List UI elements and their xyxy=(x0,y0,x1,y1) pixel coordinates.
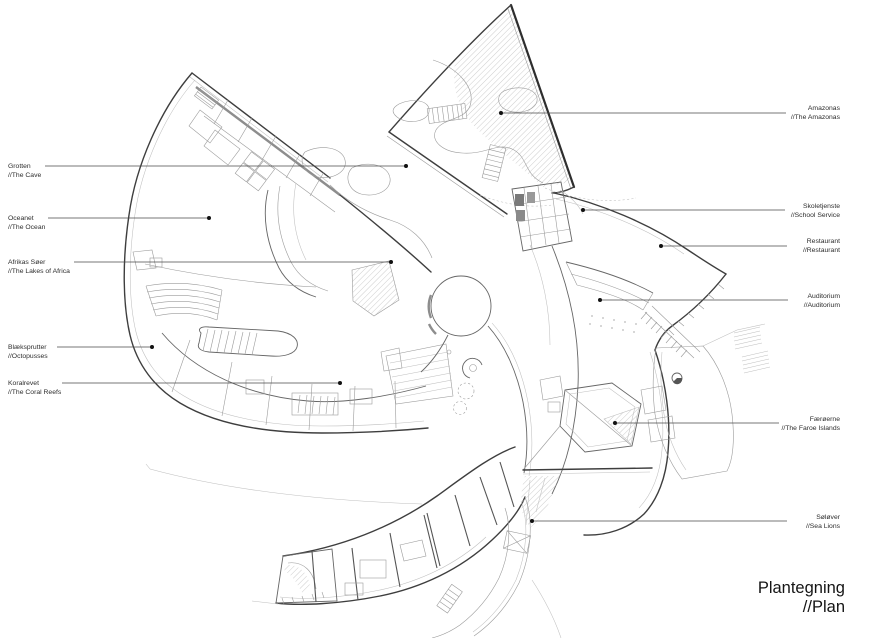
exterior-quay xyxy=(146,464,561,638)
leaders xyxy=(45,111,788,523)
striped-tank xyxy=(198,327,297,356)
labels-left: Grotten //The Cave Oceanet //The Ocean A… xyxy=(8,163,70,396)
leader-faeroerne xyxy=(613,421,779,425)
label-faeroerne-da: Færøerne xyxy=(810,416,840,423)
label-afrikas-en: //The Lakes of Africa xyxy=(8,268,70,275)
label-soelover-en: //Sea Lions xyxy=(806,523,841,530)
leader-skoletjenste xyxy=(581,208,785,212)
sea-lion-head xyxy=(276,549,337,604)
label-grotten-da: Grotten xyxy=(8,163,31,170)
hatch-area-west xyxy=(352,261,399,316)
label-afrikas-da: Afrikas Søer xyxy=(8,259,46,266)
auditorium-seating xyxy=(566,262,653,333)
escalator-stairs xyxy=(641,306,700,358)
label-restaurant-en: //Restaurant xyxy=(803,247,840,254)
label-skoletjenste-en: //School Service xyxy=(791,212,840,219)
leader-blaeksprutter xyxy=(57,345,154,349)
label-koralrevet-da: Koralrevet xyxy=(8,380,39,387)
leader-restaurant xyxy=(659,244,787,248)
label-skoletjenste-da: Skoletjenste xyxy=(803,203,840,210)
label-blaeksprutter-da: Blæksprutter xyxy=(8,344,47,351)
ray-tank xyxy=(381,344,453,404)
coral-room-dividers xyxy=(172,340,396,431)
floor-plan-sheet: Grotten //The Cave Oceanet //The Ocean A… xyxy=(0,0,870,638)
label-oceanet-en: //The Ocean xyxy=(8,224,46,231)
amphitheatre-stairs xyxy=(146,283,222,320)
arm-amazonas xyxy=(387,5,636,217)
label-faeroerne-en: //The Faroe Islands xyxy=(781,425,840,432)
school-service-block xyxy=(512,182,583,251)
label-restaurant-da: Restaurant xyxy=(807,238,840,245)
arm-south xyxy=(276,447,560,638)
sheet-title-line1: Plantegning xyxy=(758,579,845,597)
spiral-stair xyxy=(672,373,682,384)
leader-koralrevet xyxy=(62,381,342,385)
label-oceanet-da: Oceanet xyxy=(8,215,34,222)
arm-west xyxy=(124,73,453,433)
label-soelover-da: Søløver xyxy=(816,514,841,521)
grotten-room-dividers xyxy=(189,100,324,196)
floor-plan-drawing: Grotten //The Cave Oceanet //The Ocean A… xyxy=(0,0,870,638)
label-amazonas-da: Amazonas xyxy=(808,105,841,112)
labels-right: Amazonas //The Amazonas Skoletjenste //S… xyxy=(781,105,840,530)
wc-cluster xyxy=(235,152,274,191)
outdoor-wing xyxy=(653,324,770,479)
label-blaeksprutter-en: //Octopusses xyxy=(8,353,48,360)
leader-oceanet xyxy=(48,216,211,220)
africa-lakes xyxy=(302,148,432,258)
label-auditorium-en: //Auditorium xyxy=(804,302,841,309)
octopus-corner-rooms xyxy=(133,250,162,270)
label-auditorium-da: Auditorium xyxy=(808,293,841,300)
leader-afrikas xyxy=(74,260,393,264)
label-amazonas-en: //The Amazonas xyxy=(791,114,841,121)
leader-auditorium xyxy=(598,298,788,302)
bridge-stairs-top xyxy=(427,103,467,123)
sheet-title-line2: //Plan xyxy=(803,598,845,616)
label-grotten-en: //The Cave xyxy=(8,172,41,179)
label-koralrevet-en: //The Coral Reefs xyxy=(8,389,62,396)
leader-soelover xyxy=(530,519,787,523)
tail-walkway xyxy=(432,497,530,638)
sheet-title: Plantegning //Plan xyxy=(758,579,845,616)
